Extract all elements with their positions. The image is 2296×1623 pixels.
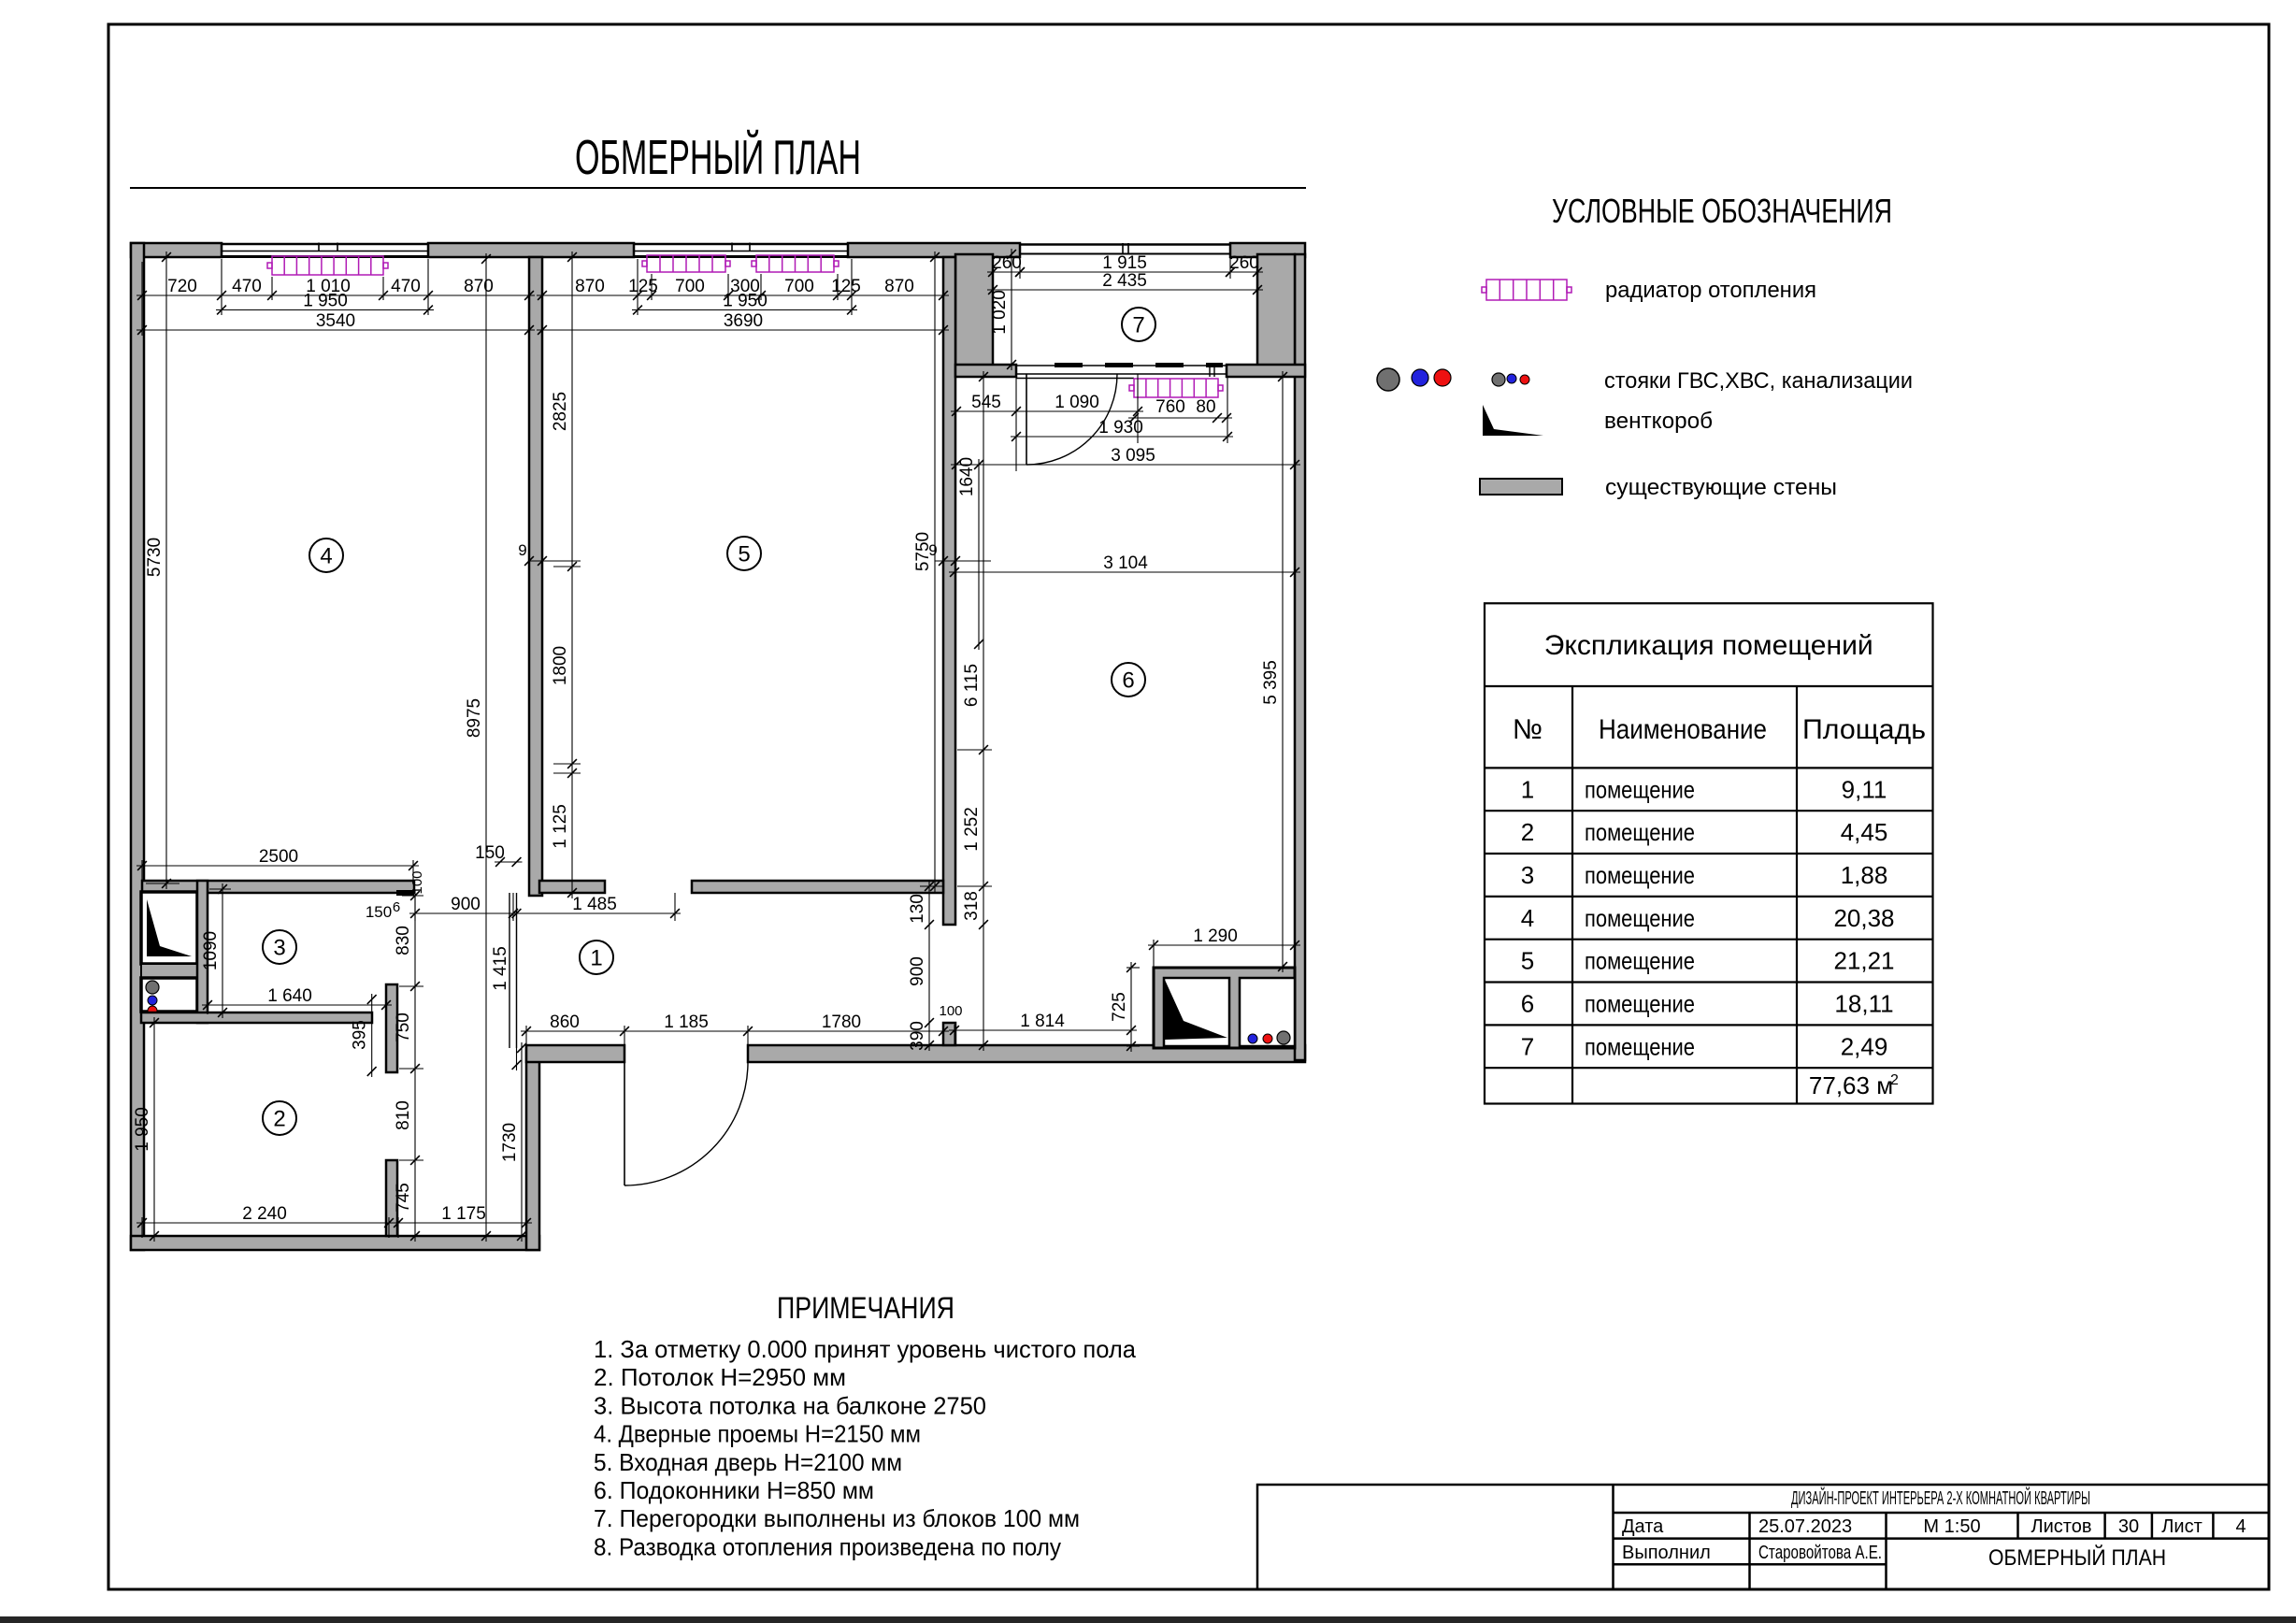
svg-text:1 175: 1 175 (441, 1204, 486, 1224)
svg-text:6. Подоконники Н=850 мм: 6. Подоконники Н=850 мм (594, 1476, 874, 1504)
svg-text:870: 870 (884, 277, 914, 296)
svg-text:Площадь: Площадь (1802, 714, 1926, 745)
svg-text:1 950: 1 950 (303, 292, 348, 311)
svg-text:830: 830 (394, 926, 413, 955)
svg-text:80: 80 (1196, 397, 1215, 417)
svg-text:3690: 3690 (724, 311, 763, 331)
svg-text:125: 125 (628, 277, 658, 296)
svg-text:870: 870 (575, 277, 605, 296)
svg-text:3540: 3540 (316, 311, 355, 331)
svg-text:260: 260 (992, 253, 1022, 273)
svg-text:1 290: 1 290 (1193, 926, 1238, 946)
svg-text:1 915: 1 915 (1102, 253, 1147, 273)
svg-text:1 090: 1 090 (1055, 393, 1099, 412)
svg-text:стояки ГВС,ХВС, канализации: стояки ГВС,ХВС, канализации (1604, 368, 1913, 394)
svg-text:помещение: помещение (1585, 989, 1695, 1017)
svg-text:7: 7 (1521, 1032, 1534, 1060)
svg-text:9: 9 (928, 541, 937, 559)
svg-text:745: 745 (394, 1183, 413, 1213)
svg-text:3 095: 3 095 (1111, 446, 1155, 466)
svg-text:8. Разводка отопления произвед: 8. Разводка отопления произведена по пол… (594, 1532, 1061, 1560)
svg-text:2: 2 (1521, 818, 1534, 846)
svg-text:1780: 1780 (822, 1013, 861, 1032)
svg-text:1. За отметку 0.000 принят уро: 1. За отметку 0.000 принят уровень чисто… (594, 1335, 1137, 1363)
svg-text:Листов: Листов (2031, 1516, 2092, 1537)
svg-text:1 020: 1 020 (990, 290, 1010, 335)
svg-text:150: 150 (475, 843, 505, 863)
svg-text:260: 260 (1229, 253, 1259, 273)
svg-text:1800: 1800 (551, 646, 570, 685)
svg-text:100: 100 (939, 1003, 962, 1019)
svg-text:1 930: 1 930 (1098, 418, 1143, 438)
svg-text:318: 318 (962, 891, 982, 921)
svg-text:25.07.2023: 25.07.2023 (1758, 1516, 1852, 1537)
svg-text:существующие стены: существующие стены (1605, 475, 1837, 500)
svg-text:2: 2 (1890, 1072, 1899, 1088)
svg-text:1 640: 1 640 (267, 986, 312, 1006)
svg-text:130: 130 (908, 894, 927, 924)
svg-text:1 814: 1 814 (1020, 1012, 1065, 1031)
svg-text:1 950: 1 950 (133, 1107, 152, 1152)
svg-text:УСЛОВНЫЕ ОБОЗНАЧЕНИЯ: УСЛОВНЫЕ ОБОЗНАЧЕНИЯ (1552, 192, 1892, 230)
svg-text:1 252: 1 252 (962, 807, 982, 852)
svg-text:900: 900 (908, 956, 927, 986)
svg-text:3: 3 (273, 935, 285, 960)
svg-text:2 435: 2 435 (1102, 271, 1147, 291)
svg-text:1 950: 1 950 (723, 292, 768, 311)
svg-text:2: 2 (273, 1106, 285, 1131)
svg-text:7: 7 (1132, 312, 1144, 338)
svg-text:Старовойтова А.Е.: Старовойтова А.Е. (1758, 1543, 1882, 1563)
svg-text:№: № (1513, 714, 1543, 745)
svg-text:6: 6 (1521, 989, 1534, 1017)
svg-text:5. Входная дверь Н=2100 мм: 5. Входная дверь Н=2100 мм (594, 1448, 902, 1476)
svg-text:помещение: помещение (1585, 904, 1695, 932)
svg-text:2825: 2825 (551, 392, 570, 431)
svg-text:9,11: 9,11 (1842, 775, 1887, 803)
svg-text:470: 470 (232, 277, 262, 296)
svg-text:1730: 1730 (500, 1123, 520, 1162)
svg-text:1: 1 (1521, 775, 1534, 803)
svg-text:7. Перегородки выполнены из бл: 7. Перегородки выполнены из блоков 100 м… (594, 1504, 1080, 1532)
svg-text:21,21: 21,21 (1833, 947, 1894, 975)
svg-text:5: 5 (738, 541, 750, 567)
svg-text:помещение: помещение (1585, 861, 1695, 889)
svg-text:470: 470 (391, 277, 421, 296)
svg-text:18,11: 18,11 (1834, 989, 1893, 1017)
svg-text:100: 100 (409, 870, 425, 894)
svg-text:860: 860 (550, 1013, 580, 1032)
svg-text:750: 750 (394, 1013, 413, 1042)
svg-text:ОБМЕРНЫЙ ПЛАН: ОБМЕРНЫЙ ПЛАН (1988, 1544, 2166, 1571)
svg-text:9: 9 (518, 541, 526, 559)
svg-text:1 125: 1 125 (551, 804, 570, 849)
svg-text:760: 760 (1155, 397, 1185, 417)
svg-text:радиатор отопления: радиатор отопления (1605, 278, 1816, 303)
svg-text:900: 900 (451, 895, 481, 914)
svg-text:30: 30 (2118, 1516, 2139, 1537)
svg-text:ДИЗАЙН-ПРОЕКТ ИНТЕРЬЕРА 2-Х КО: ДИЗАЙН-ПРОЕКТ ИНТЕРЬЕРА 2-Х КОМНАТНОЙ КВ… (1791, 1487, 2090, 1509)
svg-text:4: 4 (1521, 904, 1534, 932)
svg-text:Экспликация помещений: Экспликация помещений (1544, 630, 1873, 661)
svg-text:5: 5 (1521, 947, 1534, 975)
svg-text:4. Дверные проемы Н=2150 мм: 4. Дверные проемы Н=2150 мм (594, 1420, 921, 1448)
svg-text:2,49: 2,49 (1841, 1032, 1888, 1060)
svg-text:720: 720 (167, 277, 197, 296)
svg-text:390: 390 (908, 1021, 927, 1051)
svg-text:810: 810 (394, 1100, 413, 1130)
svg-text:М 1:50: М 1:50 (1923, 1516, 1980, 1537)
svg-text:545: 545 (971, 393, 1001, 412)
svg-text:77,63 м: 77,63 м (1809, 1071, 1893, 1099)
svg-text:1,88: 1,88 (1841, 861, 1888, 889)
svg-text:4: 4 (2235, 1516, 2246, 1537)
svg-text:6 115: 6 115 (962, 664, 982, 707)
svg-text:Выполнил: Выполнил (1622, 1543, 1711, 1563)
svg-text:6: 6 (393, 899, 400, 915)
svg-text:Дата: Дата (1622, 1516, 1664, 1537)
svg-text:Лист: Лист (2161, 1516, 2202, 1537)
svg-text:1640: 1640 (957, 457, 977, 496)
svg-text:3 104: 3 104 (1103, 553, 1148, 573)
svg-text:4: 4 (320, 543, 332, 568)
svg-text:помещение: помещение (1585, 947, 1695, 975)
svg-text:помещение: помещение (1585, 775, 1695, 803)
svg-text:Наименование: Наименование (1599, 714, 1767, 745)
svg-text:ПРИМЕЧАНИЯ: ПРИМЕЧАНИЯ (777, 1291, 954, 1325)
svg-text:125: 125 (831, 277, 861, 296)
svg-text:помещение: помещение (1585, 1032, 1695, 1060)
svg-text:395: 395 (351, 1020, 370, 1050)
svg-text:венткороб: венткороб (1604, 409, 1713, 434)
svg-text:2 240: 2 240 (242, 1204, 287, 1224)
svg-text:1: 1 (590, 945, 602, 970)
svg-text:870: 870 (464, 277, 494, 296)
svg-text:3: 3 (1521, 861, 1534, 889)
svg-text:700: 700 (784, 277, 814, 296)
svg-text:1 185: 1 185 (664, 1013, 709, 1032)
svg-text:8975: 8975 (465, 698, 484, 738)
svg-text:5 395: 5 395 (1261, 660, 1281, 705)
svg-text:2500: 2500 (259, 847, 298, 867)
svg-text:1 485: 1 485 (572, 895, 617, 914)
svg-text:1090: 1090 (201, 931, 221, 970)
svg-text:5730: 5730 (145, 538, 165, 577)
svg-text:4,45: 4,45 (1841, 818, 1888, 846)
svg-text:725: 725 (1110, 992, 1129, 1022)
svg-text:2. Потолок Н=2950 мм: 2. Потолок Н=2950 мм (594, 1363, 846, 1391)
svg-text:1 415: 1 415 (491, 946, 510, 991)
svg-text:6: 6 (1122, 668, 1134, 693)
svg-text:ОБМЕРНЫЙ ПЛАН: ОБМЕРНЫЙ ПЛАН (575, 130, 861, 185)
svg-text:150: 150 (366, 903, 392, 921)
svg-text:700: 700 (675, 277, 705, 296)
svg-text:помещение: помещение (1585, 818, 1695, 846)
svg-text:20,38: 20,38 (1833, 904, 1894, 932)
svg-text:3. Высота потолка на балконе 2: 3. Высота потолка на балконе 2750 (594, 1391, 986, 1419)
